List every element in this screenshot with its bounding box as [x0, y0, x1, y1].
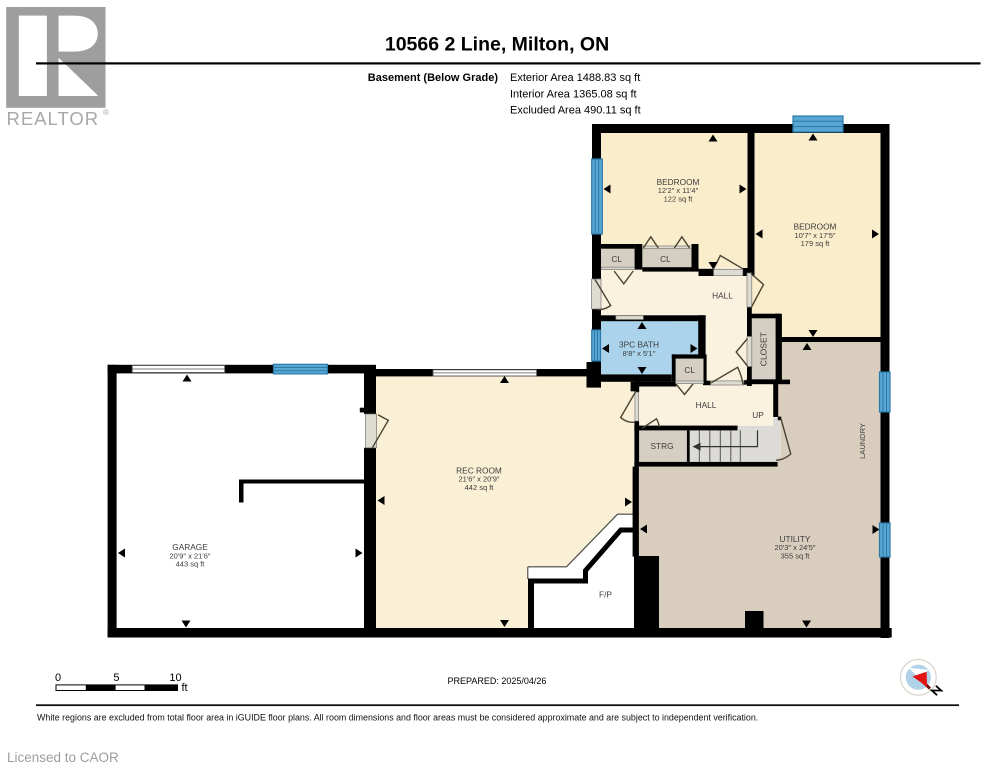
svg-text:PREPARED: 2025/04/26: PREPARED: 2025/04/26: [448, 676, 547, 686]
svg-text:UP: UP: [752, 410, 764, 420]
svg-text:CLOSET: CLOSET: [759, 332, 769, 366]
svg-text:F/P: F/P: [599, 589, 612, 599]
svg-text:442 sq ft: 442 sq ft: [465, 483, 495, 492]
svg-text:5: 5: [113, 672, 119, 684]
svg-text:STRG: STRG: [650, 441, 673, 451]
svg-text:10: 10: [169, 672, 181, 684]
svg-text:CL: CL: [660, 254, 671, 264]
svg-text:REALTOR: REALTOR: [7, 108, 100, 129]
svg-text:ft: ft: [182, 682, 188, 694]
svg-text:Exterior Area 1488.83 sq ft: Exterior Area 1488.83 sq ft: [510, 72, 640, 84]
svg-text:8′8″ x 5′1″: 8′8″ x 5′1″: [623, 349, 656, 358]
svg-text:179 sq ft: 179 sq ft: [801, 239, 831, 248]
svg-text:443 sq ft: 443 sq ft: [176, 560, 206, 569]
svg-text:CL: CL: [684, 365, 695, 375]
svg-text:®: ®: [103, 108, 109, 117]
svg-text:355 sq ft: 355 sq ft: [781, 551, 811, 560]
svg-text:LAUNDRY: LAUNDRY: [858, 423, 867, 459]
svg-text:CL: CL: [611, 254, 622, 264]
svg-text:Excluded Area 490.11 sq ft: Excluded Area 490.11 sq ft: [510, 105, 641, 117]
svg-text:122 sq ft: 122 sq ft: [664, 194, 694, 203]
svg-text:3PC BATH: 3PC BATH: [619, 339, 659, 349]
svg-text:10566 2 Line, Milton, ON: 10566 2 Line, Milton, ON: [385, 34, 609, 56]
svg-text:Basement (Below Grade): Basement (Below Grade): [368, 72, 499, 84]
svg-text:0: 0: [55, 672, 61, 684]
svg-text:HALL: HALL: [696, 400, 717, 410]
svg-text:HALL: HALL: [712, 290, 733, 300]
svg-text:White regions are excluded fro: White regions are excluded from total fl…: [37, 713, 758, 723]
svg-text:Licensed to CAOR: Licensed to CAOR: [7, 750, 119, 765]
svg-text:Interior Area 1365.08 sq ft: Interior Area 1365.08 sq ft: [510, 88, 637, 100]
